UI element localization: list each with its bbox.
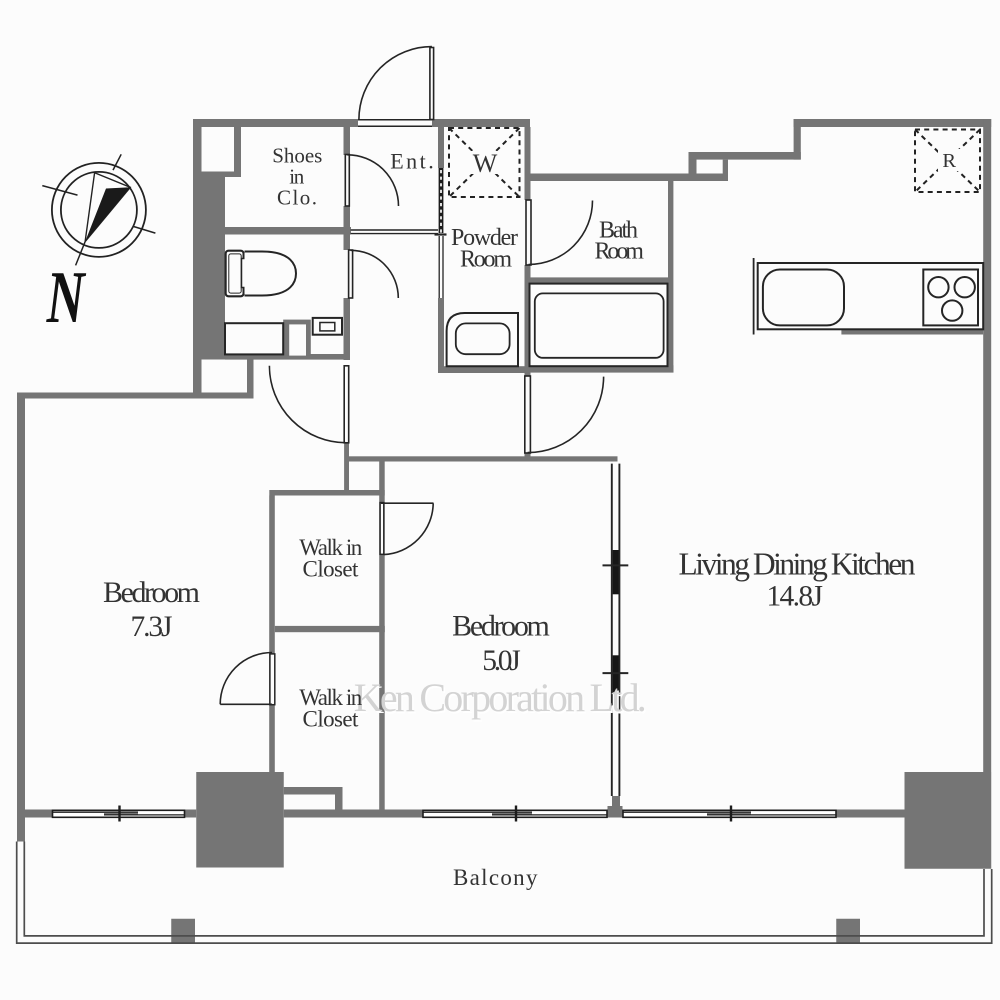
svg-text:Closet: Closet <box>303 556 360 581</box>
svg-text:Clo.: Clo. <box>277 186 317 210</box>
svg-text:Ken Corporation Ltd.: Ken Corporation Ltd. <box>354 675 647 720</box>
svg-text:Bedroom: Bedroom <box>452 610 550 643</box>
svg-text:7.3J: 7.3J <box>131 611 173 643</box>
svg-text:14.8J: 14.8J <box>766 581 823 613</box>
svg-text:Closet: Closet <box>303 707 360 732</box>
svg-text:Room: Room <box>594 239 644 265</box>
svg-text:Ent.: Ent. <box>390 149 434 174</box>
svg-text:Room: Room <box>460 247 512 273</box>
svg-text:W: W <box>473 149 498 178</box>
svg-text:Living Dining Kitchen: Living Dining Kitchen <box>679 547 916 582</box>
svg-text:Balcony: Balcony <box>453 865 538 890</box>
svg-text:5.0J: 5.0J <box>482 645 521 677</box>
svg-text:R: R <box>942 150 956 172</box>
svg-text:N: N <box>46 257 87 339</box>
svg-text:Bedroom: Bedroom <box>103 576 200 609</box>
